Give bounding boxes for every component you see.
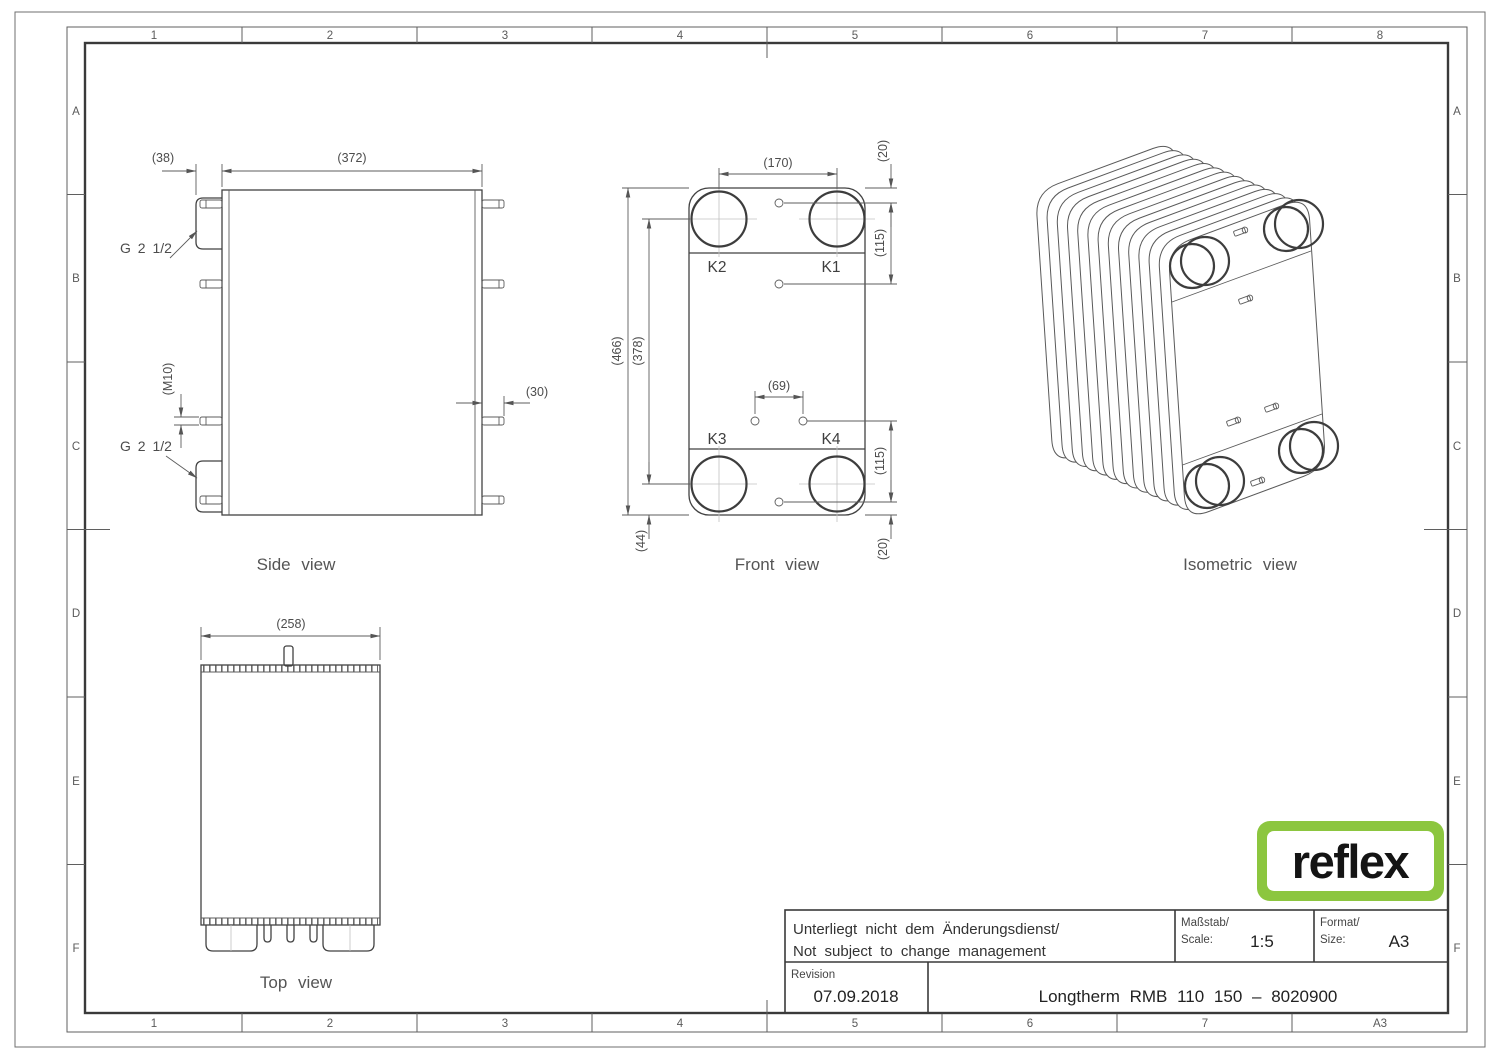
grid-label: 4: [677, 1018, 684, 1030]
part-title: Longtherm RMB 110 150 – 8020900: [1039, 987, 1338, 1006]
dimension-378: (378): [631, 336, 645, 365]
dimension-258: (258): [276, 617, 305, 631]
studs-right: [482, 200, 504, 504]
scale-cell: Maßstab/ Scale: 1:5: [1181, 917, 1274, 951]
grid-label: 5: [852, 1018, 858, 1030]
grid-label: C: [72, 441, 80, 453]
bolt-holes: [751, 199, 807, 506]
foot-block-left: [206, 925, 257, 951]
grid-label: 2: [327, 30, 333, 42]
grid-rows-right: A B C D E F: [1453, 106, 1461, 955]
grid-label: 5: [852, 30, 858, 42]
connection-label-bottom: G 2 1/2: [120, 438, 172, 454]
grid-label: 2: [327, 1018, 333, 1030]
grid-rows-left: A B C D E F: [72, 106, 80, 955]
grid-label: 1: [151, 30, 157, 42]
scale-sublabel: Scale:: [1181, 934, 1213, 946]
port-label-k3: K3: [708, 431, 727, 448]
dimension-m10: (M10): [161, 363, 175, 396]
format-value: A3: [1389, 932, 1410, 951]
front-view-caption: Front view: [735, 555, 820, 574]
top-stud: [284, 646, 293, 666]
connection-label-top: G 2 1/2: [120, 240, 172, 256]
dimension-38: (38): [152, 151, 174, 165]
grid-label: F: [72, 943, 79, 955]
change-note-cell: Unterliegt nicht dem Änderungsdienst/ No…: [793, 921, 1060, 960]
port-centerlines: [681, 181, 875, 522]
grid-label: C: [1453, 441, 1461, 453]
port-label-k2: K2: [708, 259, 727, 276]
grid-label: 3: [502, 30, 508, 42]
grid-label: A: [72, 106, 80, 118]
scale-value: 1:5: [1250, 932, 1274, 951]
grid-label: 6: [1027, 1018, 1033, 1030]
dimension-372: (372): [337, 151, 366, 165]
grid-label: D: [1453, 608, 1461, 620]
grid-label: A3: [1373, 1018, 1387, 1030]
grid-label: 4: [677, 30, 684, 42]
dimension-44: (44): [634, 530, 648, 552]
isometric-view: Isometric view: [1037, 146, 1338, 574]
dimension-115-top: (115): [873, 229, 887, 257]
title-block: Unterliegt nicht dem Änderungsdienst/ No…: [785, 910, 1448, 1013]
top-view-caption: Top view: [260, 973, 333, 992]
dimension-466: (466): [610, 336, 624, 365]
grid-label: 1: [151, 1018, 157, 1030]
grid-label: 7: [1202, 1018, 1208, 1030]
grid-label: 7: [1202, 30, 1208, 42]
port-label-k1: K1: [822, 259, 841, 276]
grid-label: F: [1453, 943, 1460, 955]
grid-label: 8: [1377, 30, 1383, 42]
grid-label: B: [72, 273, 80, 285]
dimension-30: (30): [526, 385, 548, 399]
dimension-20-top: (20): [876, 140, 890, 162]
drawing-sheet: 1 2 3 4 5 6 7 8 1 2 3 4 5 6 7 A3 A B C D…: [0, 0, 1500, 1059]
bottom-studs: [264, 925, 317, 942]
format-cell: Format/ Size: A3: [1320, 917, 1409, 951]
front-dimensions: (170) (20) (115) (115) (20) (466) (378: [610, 140, 897, 560]
grid-label: 6: [1027, 30, 1033, 42]
foot-block-right: [323, 925, 374, 951]
change-note-en: Not subject to change management: [793, 943, 1047, 960]
grid-label: E: [72, 776, 80, 788]
isometric-view-caption: Isometric view: [1183, 555, 1297, 574]
top-dimensions: (258): [201, 617, 380, 660]
revision-label: Revision: [791, 969, 835, 981]
revision-cell: Revision 07.09.2018: [791, 969, 899, 1006]
change-note-de: Unterliegt nicht dem Änderungsdienst/: [793, 921, 1060, 938]
grid-label: 3: [502, 1018, 508, 1030]
dimension-115-bottom: (115): [873, 447, 887, 475]
format-sublabel: Size:: [1320, 934, 1346, 946]
grid-label: B: [1453, 273, 1461, 285]
studs-left: [200, 200, 222, 504]
grid-label: D: [72, 608, 80, 620]
revision-date: 07.09.2018: [813, 987, 898, 1006]
dimension-69: (69): [768, 379, 790, 393]
port-label-k4: K4: [822, 431, 841, 448]
side-view: (38) (372) (M10) (30) G 2 1/2 G 2 1/2 Si…: [120, 151, 548, 574]
reflex-logo: reflex: [1257, 821, 1444, 901]
grid-columns-bottom: 1 2 3 4 5 6 7 A3: [151, 1018, 1387, 1030]
dimension-20-bottom: (20): [876, 538, 890, 560]
side-view-caption: Side view: [257, 555, 336, 574]
technical-drawing: 1 2 3 4 5 6 7 8 1 2 3 4 5 6 7 A3 A B C D…: [0, 0, 1500, 1059]
front-view: K2 K1 K3 K4 (170) (20) (115): [610, 140, 897, 574]
dimension-170: (170): [763, 156, 792, 170]
format-label: Format/: [1320, 917, 1360, 929]
scale-label: Maßstab/: [1181, 917, 1230, 929]
logo-text: reflex: [1292, 835, 1410, 888]
grid-label: E: [1453, 776, 1461, 788]
top-view: (258) Top view: [201, 617, 380, 992]
grid-label: A: [1453, 106, 1461, 118]
